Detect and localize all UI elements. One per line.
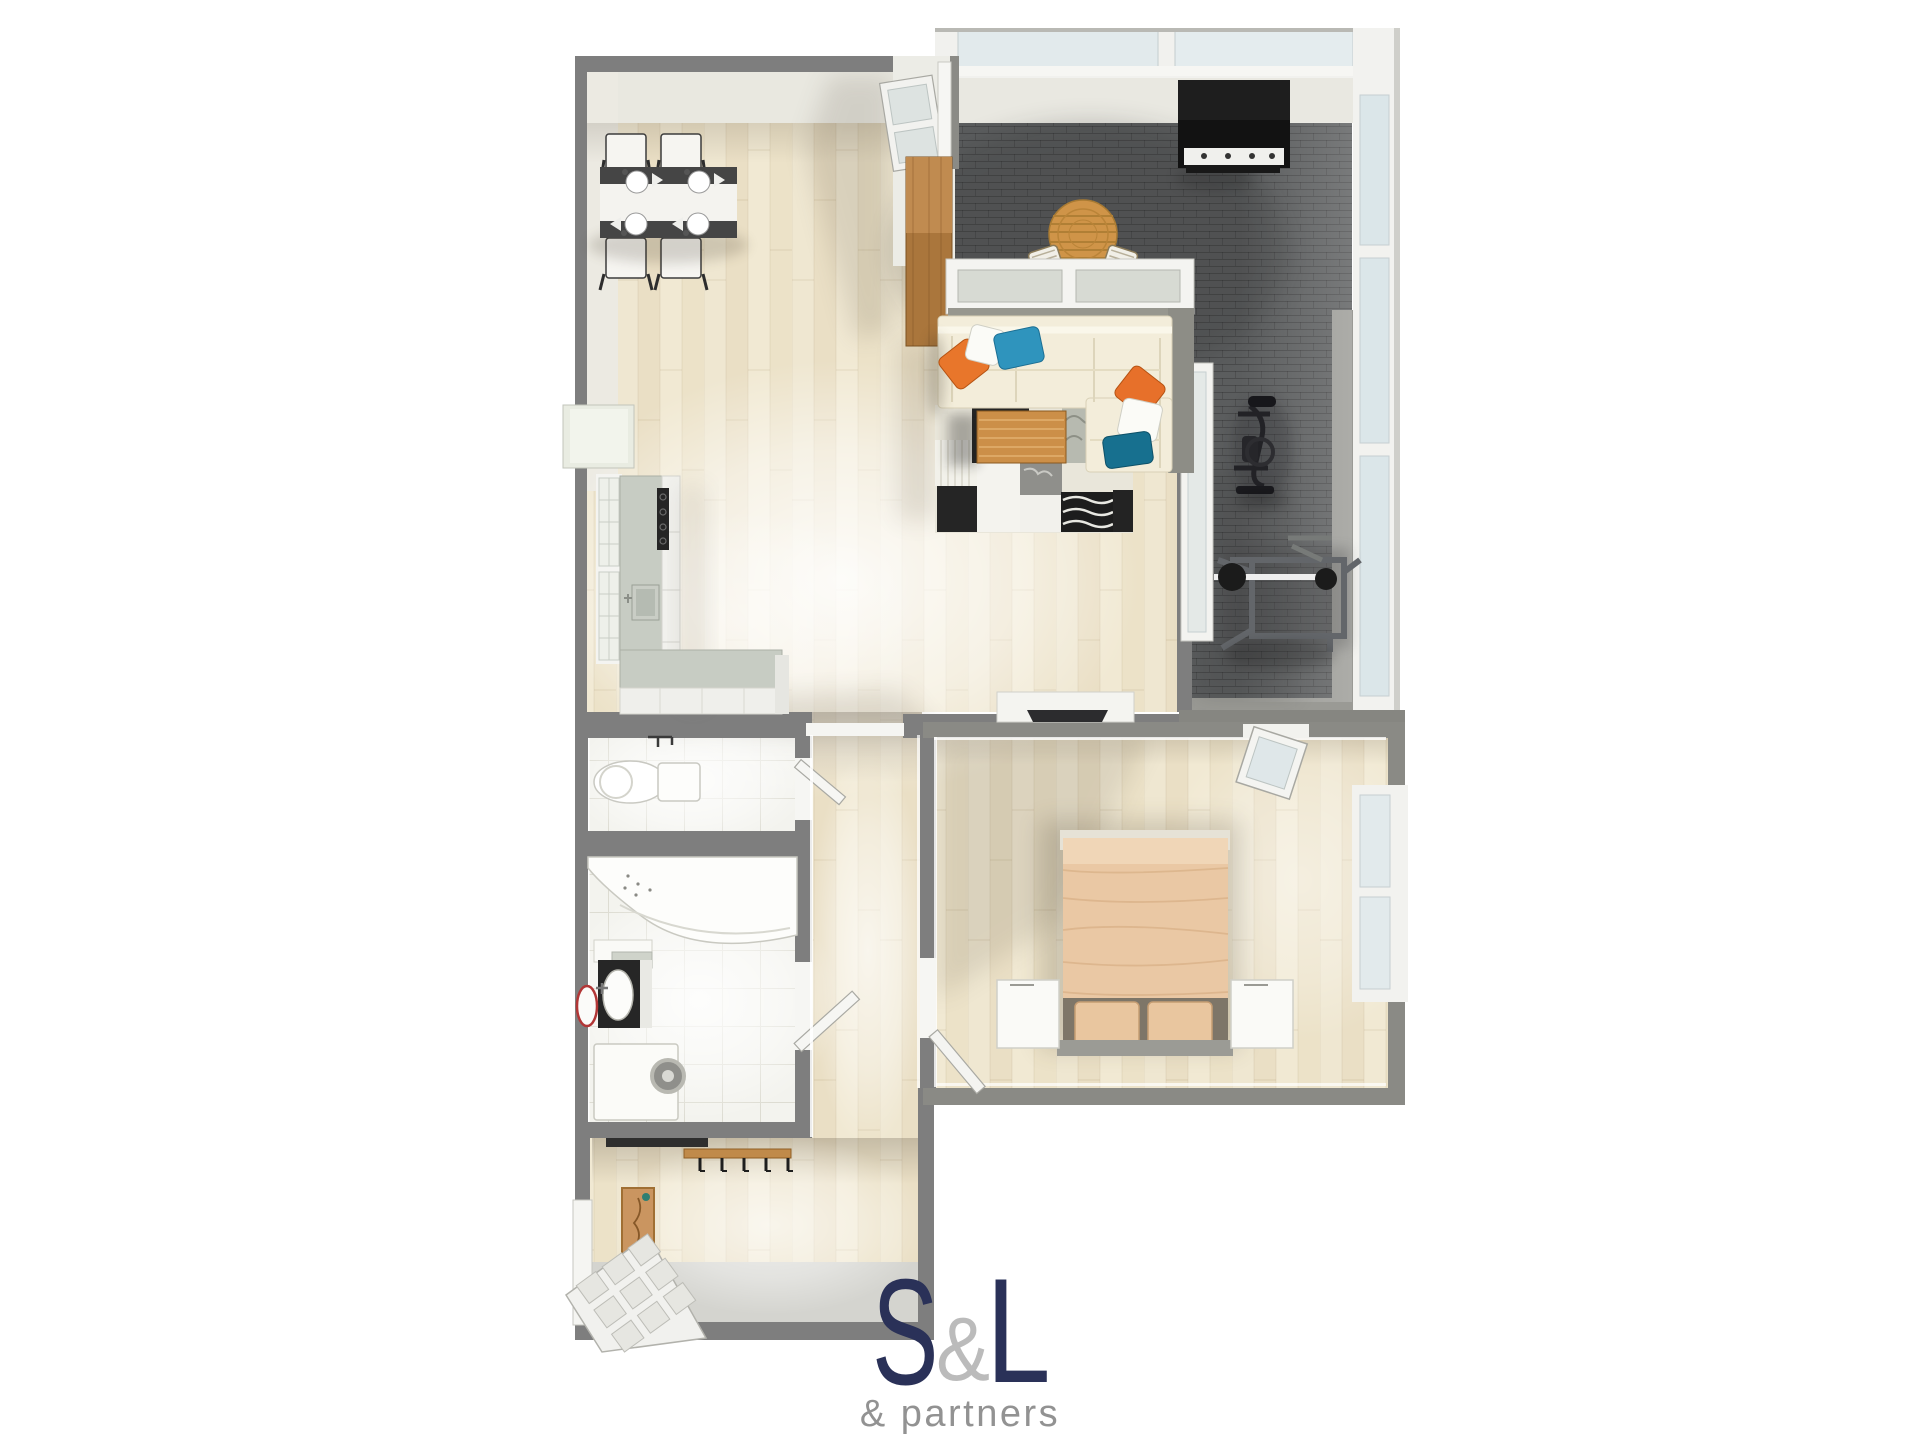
svg-text:& partners: & partners [860, 1393, 1060, 1435]
svg-text:L: L [986, 1248, 1051, 1414]
svg-text:S: S [872, 1248, 938, 1417]
svg-text:&: & [936, 1299, 990, 1400]
